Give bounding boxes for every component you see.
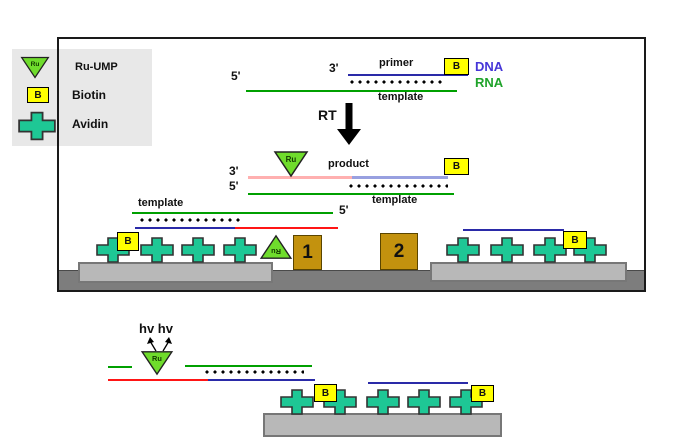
avidin-icon: [140, 237, 174, 263]
primer-label: primer: [379, 58, 413, 69]
biotin-glyph: B: [322, 388, 329, 399]
avidin-icon: [18, 111, 56, 141]
biotin-icon: B: [563, 231, 587, 249]
avidin-icon: [446, 237, 480, 263]
rna-template-line: [246, 90, 457, 92]
biotin-icon: B: [471, 385, 494, 402]
avidin-icon: [181, 237, 215, 263]
bottom-electrode-platform: [263, 413, 502, 437]
legend-label-avidin: Avidin: [72, 117, 108, 131]
biotin-glyph: B: [124, 236, 131, 247]
template-5prime-label: 5': [339, 204, 349, 216]
electrode-2-label: 2: [394, 241, 405, 263]
biotin-icon: B: [117, 232, 139, 251]
biotin-glyph: B: [34, 90, 41, 101]
captured-primer-line: [135, 227, 235, 229]
free-primer-line: [463, 229, 564, 231]
down-arrow-icon: [337, 103, 361, 147]
left-electrode-platform: [78, 262, 273, 283]
biotin-glyph: B: [453, 161, 460, 172]
primer-3prime-label: 3': [329, 62, 339, 74]
legend-label-ru-ump: Ru-UMP: [75, 61, 118, 73]
template-label: template: [372, 195, 417, 206]
biotin-icon: B: [27, 87, 49, 103]
rna-template-line: [248, 193, 454, 195]
product-3prime-label: 3': [229, 165, 239, 177]
svg-text:Ru: Ru: [286, 155, 297, 164]
biotin-glyph: B: [571, 235, 578, 246]
electrode-block-1: 1: [293, 235, 322, 270]
avidin-icon: [223, 237, 257, 263]
avidin-icon: [407, 389, 441, 415]
svg-text:Ru: Ru: [152, 354, 162, 363]
ru-ump-icon: Ru: [273, 150, 309, 178]
biotin-icon: B: [444, 58, 469, 75]
biotin-icon: B: [314, 384, 337, 402]
legend: Ru Ru-UMP B Biotin Avidin: [12, 49, 152, 146]
avidin-icon: [366, 389, 400, 415]
base-pairing-dots: [138, 218, 241, 222]
template-label: template: [138, 198, 183, 209]
captured-product-line: [235, 227, 338, 229]
avidin-icon: [490, 237, 524, 263]
product-line: [108, 379, 208, 381]
template-5prime-label: 5': [231, 70, 241, 82]
primer-line: [208, 379, 315, 381]
template-label: template: [378, 92, 423, 103]
free-primer-line: [368, 382, 468, 384]
avidin-icon: [533, 237, 567, 263]
rna-key-label: RNA: [475, 76, 503, 89]
base-pairing-dots: [348, 80, 444, 84]
template-5prime-label: 5': [229, 180, 239, 192]
electrode-1-label: 1: [302, 242, 313, 264]
biotin-icon: B: [444, 158, 469, 175]
avidin-icon: [280, 389, 314, 415]
rna-template-line: [132, 212, 333, 214]
product-primer-segment-line: [352, 176, 448, 179]
svg-text:Ru: Ru: [31, 61, 40, 68]
legend-label-biotin: Biotin: [72, 88, 106, 102]
hv-emission-label: hv hv: [139, 322, 173, 335]
ru-ump-icon: Ru: [139, 350, 175, 376]
base-pairing-dots: [203, 370, 304, 374]
rna-template-line: [108, 366, 132, 368]
ru-ump-icon: Ru: [20, 55, 50, 80]
right-electrode-platform: [430, 262, 627, 282]
biotin-glyph: B: [479, 388, 486, 399]
electrode-block-2: 2: [380, 233, 418, 270]
ru-ump-icon: Ru: [259, 234, 293, 260]
rt-label: RT: [318, 108, 337, 122]
svg-text:Ru: Ru: [271, 247, 281, 256]
rna-template-line: [185, 365, 312, 367]
biotin-glyph: B: [453, 61, 460, 72]
figure-canvas: 1 2 Ru Ru-UMP B Biotin Avidin 3' primer …: [0, 0, 693, 439]
base-pairing-dots: [347, 184, 448, 188]
dna-key-label: DNA: [475, 60, 503, 73]
product-label: product: [328, 159, 369, 170]
